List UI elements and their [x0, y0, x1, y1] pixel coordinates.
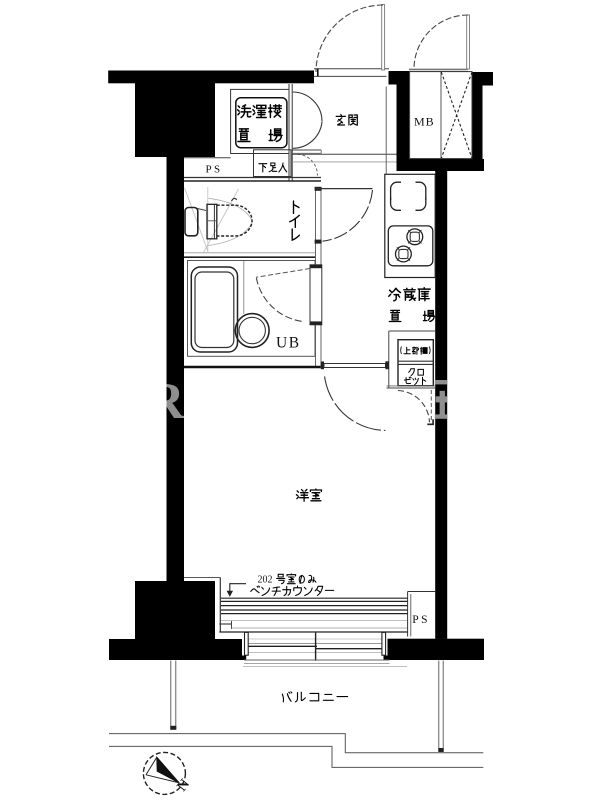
- svg-text:202: 202: [258, 575, 273, 586]
- svg-text:UB: UB: [276, 335, 301, 352]
- svg-text:P S: P S: [412, 614, 427, 626]
- svg-text:N: N: [174, 776, 193, 795]
- svg-text:P S: P S: [206, 163, 221, 175]
- svg-text:R: R: [147, 373, 186, 430]
- svg-text:MB: MB: [414, 115, 435, 129]
